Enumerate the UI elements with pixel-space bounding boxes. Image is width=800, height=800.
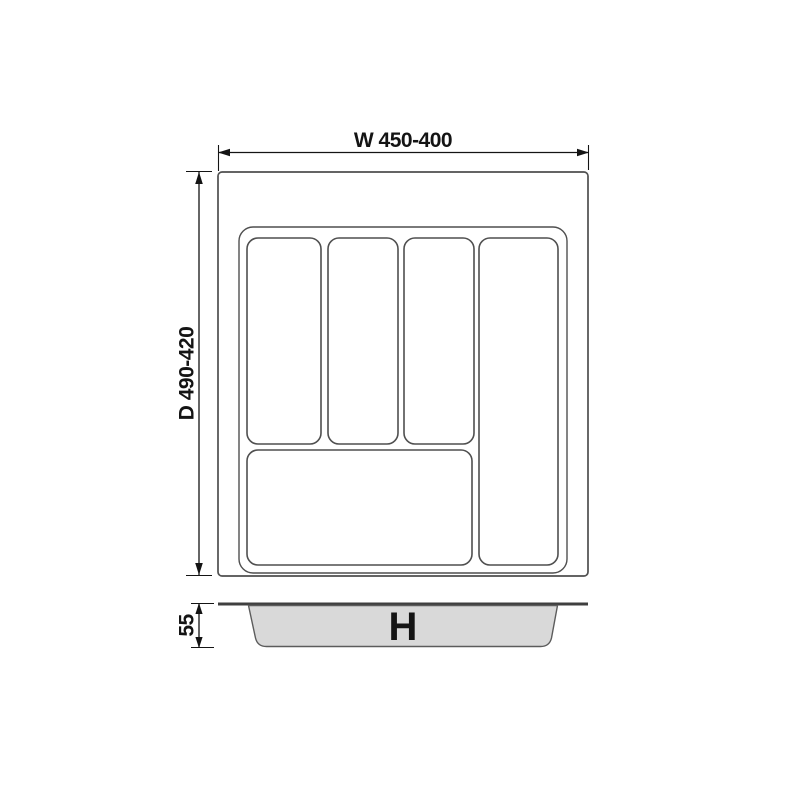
side-view: H xyxy=(218,604,588,649)
rim-height-dimension: 55 xyxy=(176,603,215,648)
rim-arrow-top xyxy=(195,603,202,614)
depth-arrow-top xyxy=(195,172,203,184)
depth-arrow-bottom xyxy=(195,563,203,575)
width-dimension-label: W 450-400 xyxy=(354,129,452,152)
depth-dimension-label: D 490-420 xyxy=(176,327,199,421)
tray-outer-edge xyxy=(218,172,588,576)
width-arrow-left xyxy=(218,149,230,157)
rim-arrow-bottom xyxy=(195,637,202,648)
tray-height-label: H xyxy=(389,605,418,649)
diagram-canvas: W 450-400 D 490-420 H 55 xyxy=(0,0,800,800)
depth-dimension: D 490-420 xyxy=(176,172,213,576)
plan-view xyxy=(218,172,588,576)
width-arrow-right xyxy=(577,149,589,157)
cutlery-tray-dimension-diagram: W 450-400 D 490-420 H 55 xyxy=(0,0,800,800)
rim-height-dimension-label: 55 xyxy=(176,614,199,637)
width-dimension: W 450-400 xyxy=(218,129,589,171)
